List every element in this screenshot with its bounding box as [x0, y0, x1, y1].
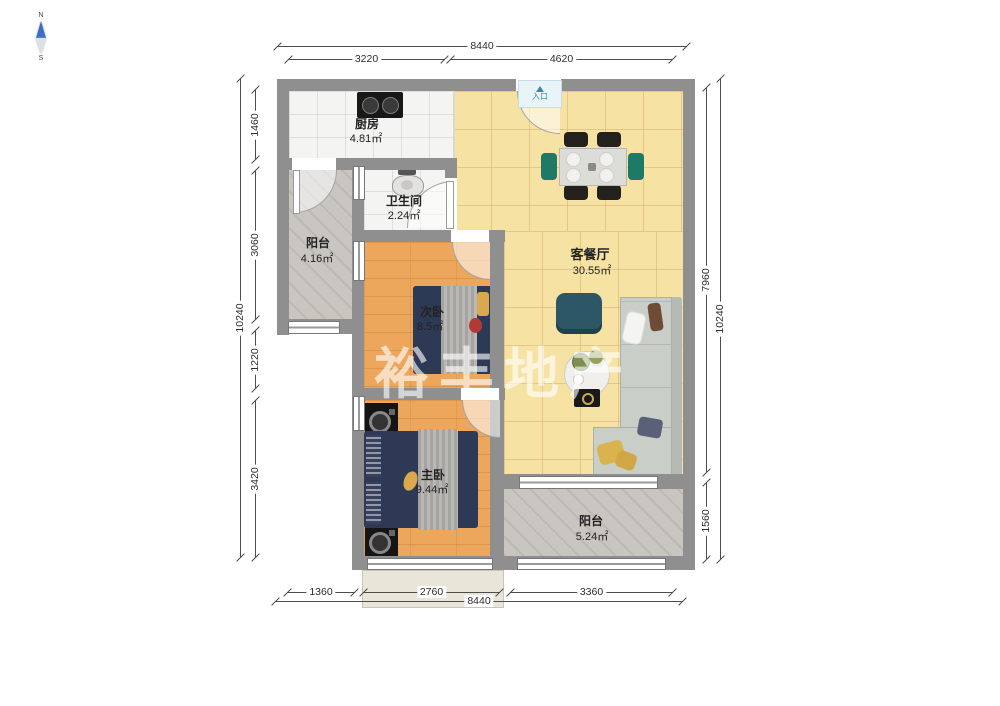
master-bedroom-area: 9.44㎡	[416, 480, 448, 498]
kitchen-area: 4.81㎡	[350, 129, 382, 147]
second-bedroom-door-opening	[451, 230, 489, 242]
bed-pillow-yellow	[477, 292, 489, 316]
living-balcony-window	[519, 476, 658, 489]
wall-right	[683, 79, 695, 570]
dining-chair	[597, 185, 621, 200]
dining-chair-green	[541, 153, 557, 180]
compass: N S	[30, 12, 52, 63]
dining-chair	[597, 132, 621, 147]
dining-table	[559, 148, 627, 186]
balcony-bottom-window	[517, 558, 666, 570]
compass-needle-icon	[36, 21, 46, 38]
floor-plan-canvas: N S	[0, 0, 1000, 706]
bathroom-window	[353, 166, 365, 200]
dining-chair	[564, 185, 588, 200]
sofa-pillow-blue	[637, 416, 664, 439]
entrance-label: 入口	[532, 92, 548, 102]
bathroom-door-leaf	[446, 181, 454, 229]
lamp-icon	[369, 411, 391, 433]
living-area: 30.55㎡	[573, 261, 612, 279]
bay-window	[367, 558, 493, 570]
balcony-door-opening	[292, 158, 336, 170]
burner-icon	[362, 97, 379, 114]
entrance-badge: 入口	[518, 80, 562, 108]
compass-needle-south-icon	[36, 38, 46, 54]
accent-chair	[556, 293, 602, 334]
balcony-left-area: 4.16㎡	[301, 249, 333, 267]
kitchen-living-divider	[453, 91, 455, 158]
wall-left-upper	[277, 79, 289, 335]
bathroom-area: 2.24㎡	[388, 206, 420, 224]
burner-icon	[382, 97, 399, 114]
compass-north-label: N	[30, 12, 52, 20]
balcony-bottom-area: 5.24㎡	[576, 527, 608, 545]
lamp-icon	[369, 532, 391, 554]
dining-chair-green	[628, 153, 644, 180]
nightstand	[365, 524, 398, 556]
master-bedroom-window	[353, 396, 365, 431]
second-bedroom-window	[353, 241, 365, 281]
balcony-left-window	[288, 321, 340, 334]
watermark: 裕丰地产	[374, 329, 634, 409]
wall-top	[277, 79, 695, 91]
balcony-door-leaf	[293, 170, 300, 214]
wall-left-bedrooms	[352, 158, 364, 570]
compass-south-label: S	[30, 55, 52, 63]
dining-chair	[564, 132, 588, 147]
